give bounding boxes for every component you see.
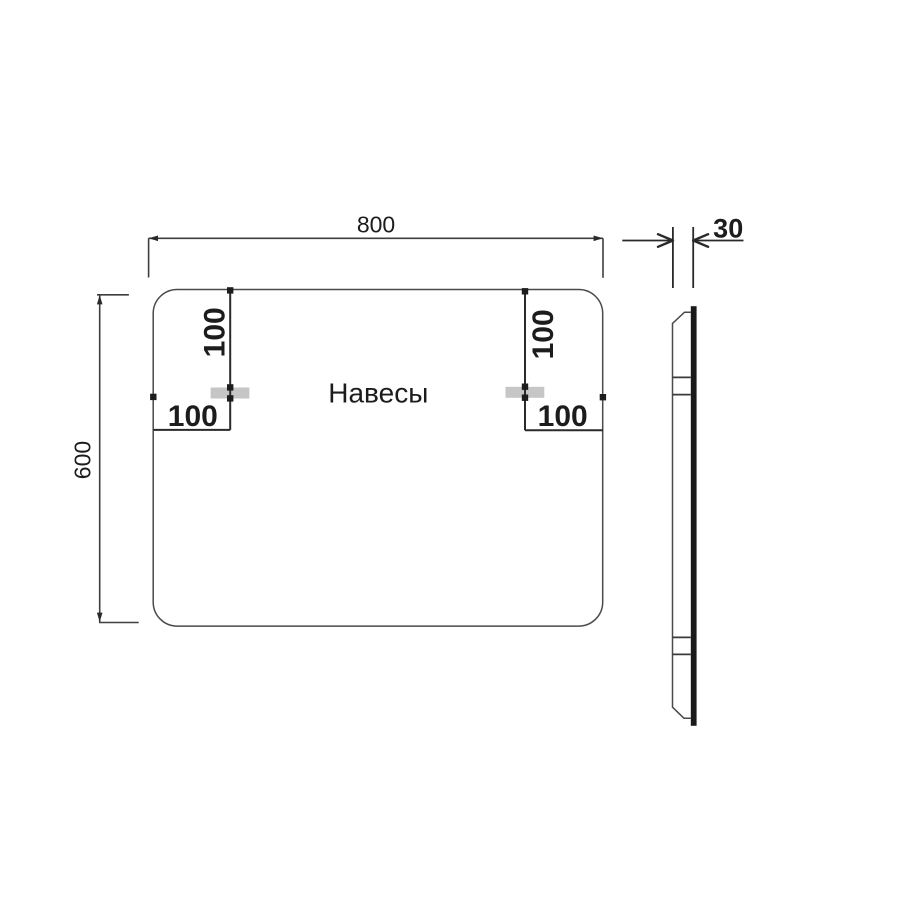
svg-text:Навесы: Навесы <box>328 377 428 408</box>
svg-text:100: 100 <box>527 309 560 359</box>
svg-text:100: 100 <box>538 400 588 433</box>
svg-text:100: 100 <box>199 307 232 357</box>
svg-text:100: 100 <box>168 400 218 433</box>
svg-text:30: 30 <box>713 214 743 244</box>
svg-text:600: 600 <box>70 441 96 479</box>
svg-text:800: 800 <box>357 212 395 238</box>
